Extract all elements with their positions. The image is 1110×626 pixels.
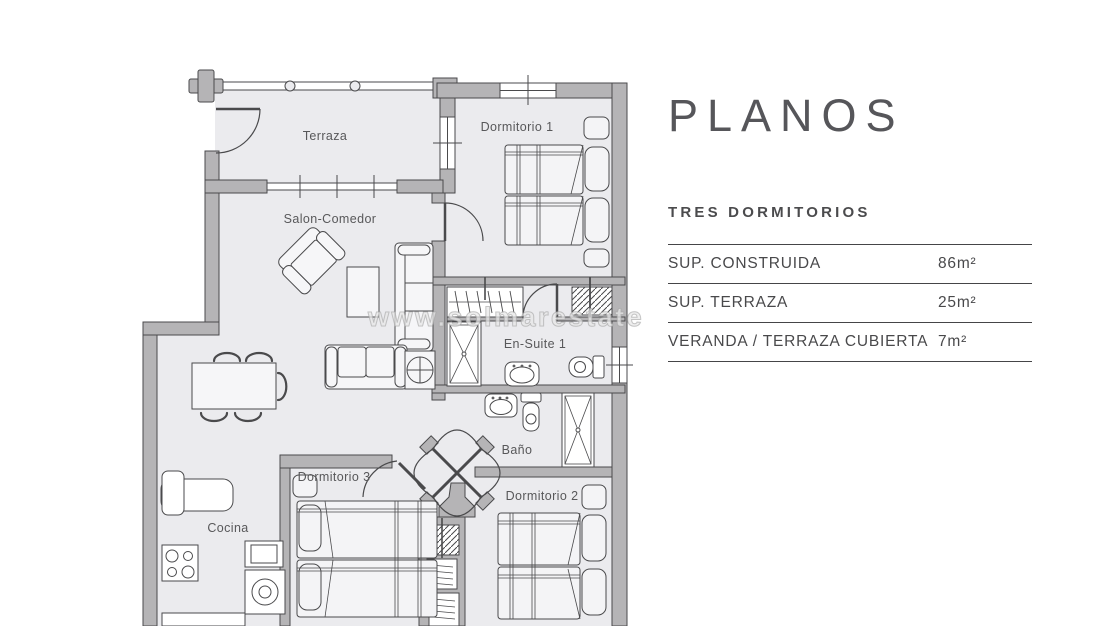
table-row: SUP. TERRAZA 25m² [668, 283, 1032, 322]
row-label: SUP. TERRAZA [668, 294, 938, 312]
listing-floorplan-page: Terraza Dormitorio 1 Salon-Comedor En-Su… [0, 0, 1110, 626]
row-value: 25m² [938, 294, 977, 312]
row-value: 7m² [938, 333, 967, 351]
plan-subtitle: TRES DORMITORIOS [668, 204, 871, 221]
room-label-dormitorio-1: Dormitorio 1 [481, 120, 554, 134]
room-label-salon: Salon-Comedor [284, 212, 377, 226]
info-panel: PLANOS TRES DORMITORIOS SUP. CONSTRUIDA … [668, 0, 1032, 626]
room-label-terraza: Terraza [303, 129, 347, 143]
row-label: VERANDA / TERRAZA CUBIERTA [668, 333, 938, 351]
row-value: 86m² [938, 255, 977, 273]
room-label-cocina: Cocina [207, 521, 248, 535]
row-label: SUP. CONSTRUIDA [668, 255, 938, 273]
surface-table: SUP. CONSTRUIDA 86m² SUP. TERRAZA 25m² V… [668, 244, 1032, 362]
watermark: www.solmarestate [368, 302, 644, 333]
room-label-ensuite: En-Suite 1 [504, 337, 566, 351]
table-row: VERANDA / TERRAZA CUBIERTA 7m² [668, 322, 1032, 362]
room-label-dormitorio-3: Dormitorio 3 [298, 470, 371, 484]
page-title: PLANOS [668, 90, 905, 142]
floor-plan: Terraza Dormitorio 1 Salon-Comedor En-Su… [85, 55, 645, 626]
room-label-bano: Baño [502, 443, 533, 457]
table-row: SUP. CONSTRUIDA 86m² [668, 244, 1032, 283]
room-label-dormitorio-2: Dormitorio 2 [506, 489, 579, 503]
